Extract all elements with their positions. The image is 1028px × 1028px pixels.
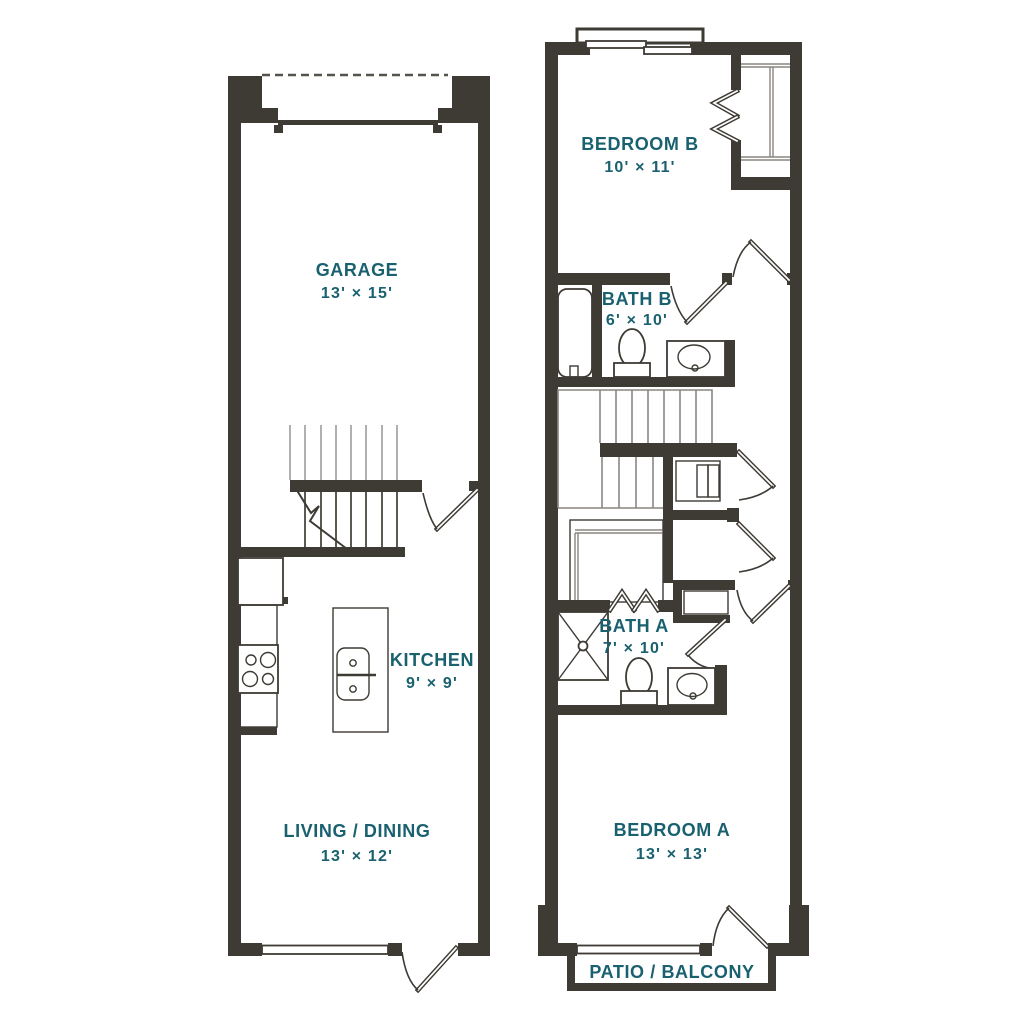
- floor1-plan: GARAGE 13' × 15' KITCHEN 9' × 9' LIVING …: [228, 75, 490, 990]
- understair-closet: [570, 520, 663, 602]
- utility-door-swing: [739, 452, 773, 500]
- bifold-door-closet-b: [714, 91, 737, 141]
- bath-a-door-swing: [688, 620, 725, 669]
- floor-plan-canvas: GARAGE 13' × 15' KITCHEN 9' × 9' LIVING …: [0, 0, 1028, 1028]
- bathtub: [558, 289, 592, 377]
- bifold-door-bath-a: [610, 592, 658, 610]
- floor1-labels: GARAGE 13' × 15' KITCHEN 9' × 9' LIVING …: [283, 260, 474, 865]
- bath-a-dims: 7' × 10': [603, 640, 665, 657]
- garage-dims: 13' × 15': [321, 285, 393, 302]
- hall-closet-door-swing: [739, 524, 773, 572]
- bedroom-a-dims: 13' × 13': [636, 846, 708, 863]
- stair-treads-upper: [290, 425, 397, 480]
- island-sink: [337, 648, 376, 700]
- stairs-floor1: [237, 425, 422, 557]
- bedroom-b-label: BEDROOM B: [581, 134, 698, 154]
- living-patio-door-swing: [402, 948, 456, 990]
- floor-plan-svg: GARAGE 13' × 15' KITCHEN 9' × 9' LIVING …: [0, 0, 1028, 1028]
- bath-b-label: BATH B: [602, 289, 672, 309]
- living-window: [262, 946, 388, 955]
- entry-door-swing: [423, 481, 478, 529]
- bedroom-a-label: BEDROOM A: [614, 820, 731, 840]
- bath-a-label: BATH A: [599, 616, 669, 636]
- kitchen-dims: 9' × 9': [406, 675, 458, 692]
- vanity-sink-bath-b: [667, 341, 725, 377]
- living-dining-dims: 13' × 12': [321, 848, 393, 865]
- bedroom-b-dims: 10' × 11': [604, 159, 675, 176]
- kitchen-fixtures: [238, 558, 388, 735]
- range: [238, 645, 278, 693]
- garage-door: [262, 75, 448, 133]
- fridge-handle: [283, 597, 288, 604]
- patio-balcony: PATIO / BALCONY: [567, 956, 776, 991]
- garage-label: GARAGE: [316, 260, 399, 280]
- balcony-door-swing: [713, 908, 767, 946]
- living-dining-label: LIVING / DINING: [283, 821, 430, 841]
- stair-break-line: [293, 484, 347, 549]
- bedroom-a-door-swing: [737, 586, 789, 621]
- toilet-bath-b: [614, 329, 650, 377]
- stairs-floor2: [558, 390, 737, 508]
- refrigerator: [238, 558, 283, 605]
- linen-niche: [684, 591, 728, 614]
- floor2-plan: PATIO / BALCONY BEDROOM B 10' × 11' BATH…: [538, 29, 809, 991]
- vanity-sink-bath-a: [668, 668, 715, 705]
- utility-closet: [663, 452, 773, 583]
- bedroom-b-closet: [714, 55, 802, 190]
- bedroom-b-bottom-wall: [545, 273, 802, 285]
- kitchen-island: [333, 608, 388, 732]
- bedroom-b-bay-window: [577, 29, 703, 54]
- bath-b-dims: 6' × 10': [606, 312, 668, 329]
- stair-treads-lower: [305, 492, 397, 547]
- bath-b-door-swing: [671, 283, 726, 322]
- stair2-treads-upper: [600, 390, 696, 443]
- bedroom-a-window: [577, 946, 700, 954]
- kitchen-label: KITCHEN: [390, 650, 474, 670]
- bedroom-b-door-swing: [733, 242, 789, 280]
- toilet-bath-a: [621, 658, 657, 705]
- stair2-treads-lower: [602, 457, 653, 508]
- floor2-labels: BEDROOM B 10' × 11' BATH B 6' × 10' BATH…: [581, 134, 730, 863]
- patio-label: PATIO / BALCONY: [589, 962, 754, 982]
- washer-dryer: [676, 461, 720, 501]
- closet-shelves: [741, 64, 790, 160]
